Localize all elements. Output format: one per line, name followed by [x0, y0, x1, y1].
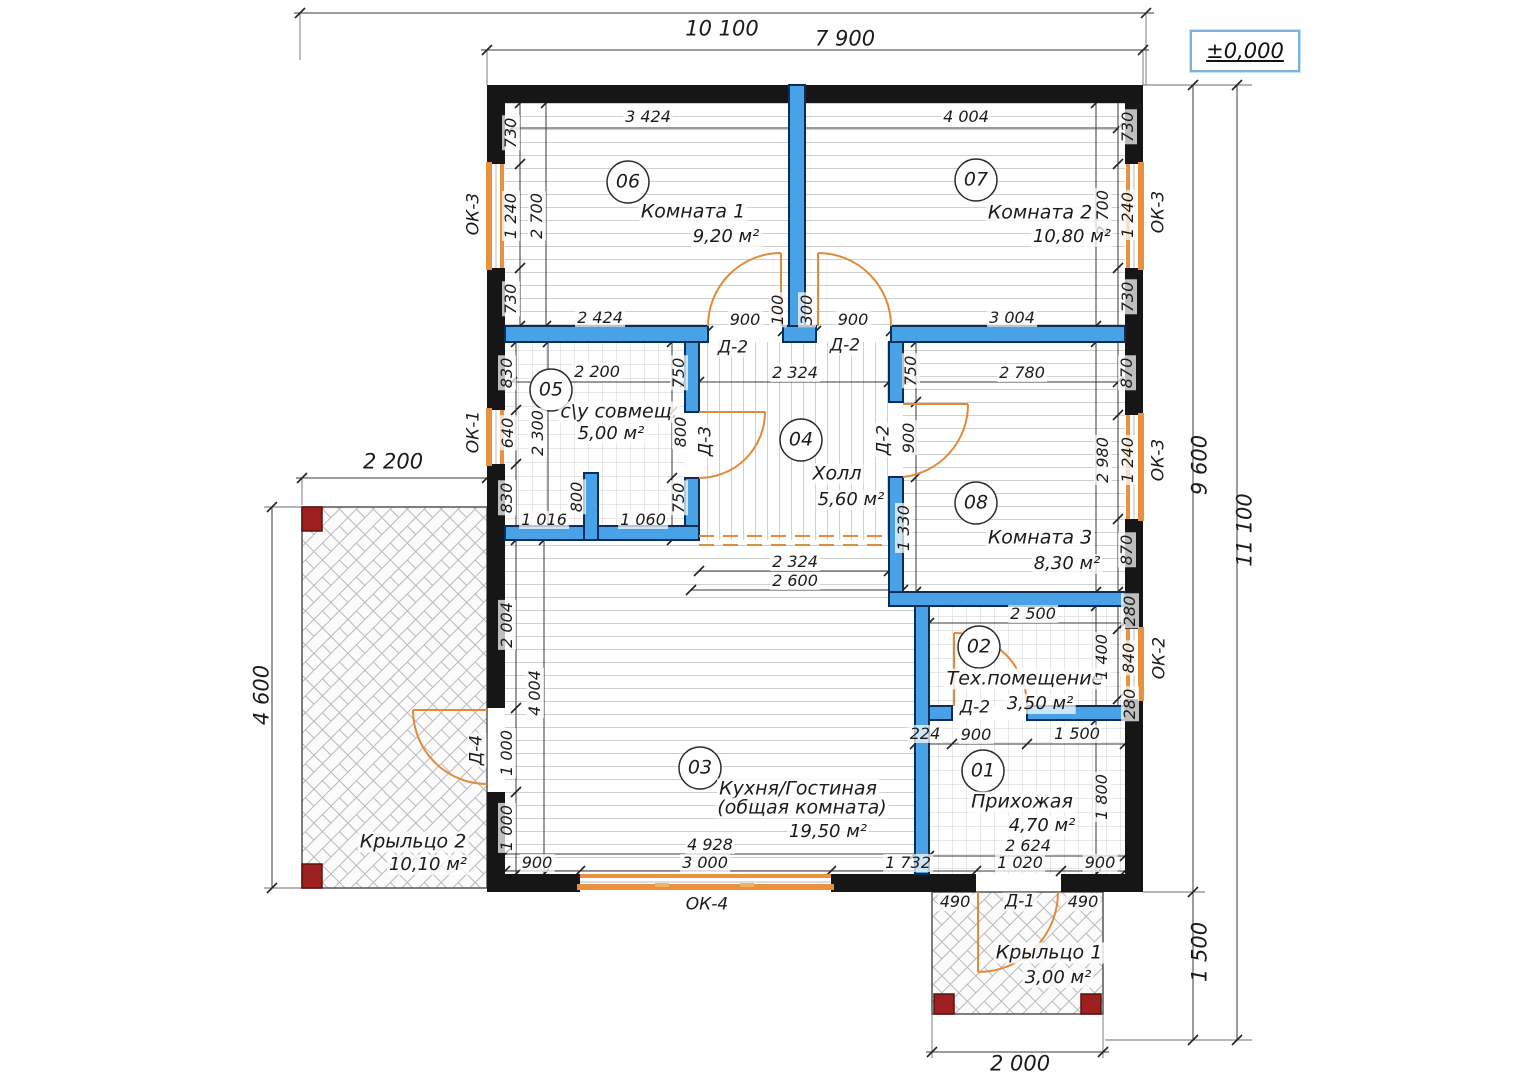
dim-1400: 1 400: [1093, 632, 1111, 682]
room-name-04: Холл: [811, 464, 864, 485]
door-label-d2: Д-2: [828, 337, 862, 356]
dim-800-door: 800: [672, 415, 690, 450]
room-number-06: 06: [616, 173, 640, 192]
dim-right-9600: 9 600: [1189, 433, 1212, 497]
room-name-03-line2: (общая комната): [715, 798, 888, 819]
room-number-02: 02: [967, 638, 991, 657]
dim-1500: 1 500: [1052, 725, 1102, 743]
dim-830: 830: [498, 481, 516, 516]
porch2-name: Крыльцо 2: [358, 832, 469, 853]
room-area-08: 8,30 м²: [1032, 554, 1103, 574]
door-label-d2: Д-2: [716, 339, 750, 358]
dim-490: 490: [1066, 893, 1101, 911]
dim-porch2-height: 4 600: [251, 663, 274, 727]
dim-730: 730: [1119, 280, 1137, 315]
dim-gap-100: 100: [769, 293, 787, 328]
dim-750: 750: [670, 481, 688, 516]
room-number-01: 01: [971, 762, 995, 781]
dim-800-stub: 800: [568, 480, 586, 515]
dim-840: 840: [1120, 641, 1138, 676]
dim-r07-bottom: 3 004: [987, 309, 1037, 327]
dim-r06-top: 3 424: [623, 108, 673, 126]
dim-1330: 1 330: [895, 503, 913, 553]
dim-hall-top: 2 324: [770, 364, 820, 382]
dim-640: 640: [499, 416, 517, 451]
room-number-05: 05: [539, 381, 563, 400]
dim-r08-bottom: 2 500: [1008, 605, 1058, 623]
window-label-ok4: ОК-4: [684, 896, 730, 915]
dim-2004: 2 004: [498, 600, 516, 650]
room-area-02: 3,50 м²: [1005, 694, 1076, 714]
room-area-07: 10,80 м²: [1031, 227, 1113, 247]
dim-830: 830: [498, 356, 516, 391]
dim-inner-width: 7 900: [813, 28, 877, 51]
elevation-marker: ±0,000: [1190, 30, 1300, 72]
room-area-06: 9,20 м²: [691, 227, 762, 247]
dim-1732: 1 732: [883, 854, 933, 872]
dim-870: 870: [1118, 533, 1136, 568]
dim-3000: 3 000: [680, 854, 730, 872]
dim-1016: 1 016: [519, 511, 569, 529]
room-number-08: 08: [964, 494, 988, 513]
dim-750: 750: [902, 354, 920, 389]
dim-2300: 2 300: [529, 408, 547, 458]
room-name-06: Комната 1: [639, 202, 747, 223]
room-name-08: Комната 3: [986, 528, 1094, 549]
room-area-01: 4,70 м²: [1007, 816, 1078, 836]
door-label-d2: Д-2: [875, 423, 894, 457]
dim-2600: 2 600: [770, 572, 820, 590]
room-area-03: 19,50 м²: [787, 822, 869, 842]
room-name-05: с\у совмещ.: [558, 402, 679, 423]
dim-b05-top: 2 200: [572, 363, 622, 381]
window-label-ok1: ОК-1: [465, 409, 484, 455]
dim-900: 900: [520, 854, 555, 872]
dim-4928: 4 928: [685, 836, 735, 854]
floor-plan-drawing: [0, 0, 1528, 1080]
room-number-03: 03: [688, 759, 712, 778]
dim-porch2-width: 2 200: [361, 451, 425, 474]
dim-870: 870: [1118, 356, 1136, 391]
room-number-04: 04: [789, 431, 813, 450]
dim-porch1-width: 2 000: [988, 1053, 1052, 1076]
dim-gap-300: 300: [798, 293, 816, 328]
dim-1240: 1 240: [1119, 435, 1137, 485]
dim-door-900: 900: [728, 311, 763, 329]
window-label-ok3-right-top: ОК-3: [1150, 189, 1169, 235]
room-name-07: Комната 2: [986, 203, 1094, 224]
dim-280: 280: [1121, 687, 1139, 722]
dim-r06-bottom: 2 424: [575, 309, 625, 327]
room-area-04: 5,60 м²: [816, 490, 887, 510]
dim-2700: 2 700: [528, 191, 546, 241]
dim-4004: 4 004: [526, 668, 544, 718]
dim-1000: 1 000: [498, 803, 516, 853]
dim-1240: 1 240: [1119, 190, 1137, 240]
porch1-area: 3,00 м²: [1023, 968, 1094, 988]
dim-280: 280: [1121, 594, 1139, 629]
floor-plan: ±0,000 10 100 7 900 9 600 11 100 1 500 4…: [0, 0, 1528, 1080]
dim-730: 730: [1119, 110, 1137, 145]
dim-overall-width: 10 100: [683, 18, 760, 41]
dim-1240: 1 240: [502, 191, 520, 241]
dim-2980: 2 980: [1094, 435, 1112, 485]
dim-490: 490: [938, 893, 973, 911]
door-label-d2: Д-2: [958, 699, 992, 718]
window-ok4-bottom: [577, 874, 834, 890]
window-label-ok3-left: ОК-3: [465, 191, 484, 237]
room-area-05: 5,00 м²: [576, 424, 647, 444]
dim-1060: 1 060: [618, 511, 668, 529]
dim-1800: 1 800: [1093, 772, 1111, 822]
porch1-name: Крыльцо 1: [994, 943, 1105, 964]
door-label-d1: Д-1: [1003, 893, 1037, 912]
room-name-02: Тех.помещение: [945, 669, 1106, 690]
dim-900: 900: [900, 421, 918, 456]
dim-r07-top: 4 004: [941, 108, 991, 126]
dim-hall-bottom: 2 324: [770, 553, 820, 571]
room-name-01: Прихожая: [969, 792, 1075, 813]
room-number-07: 07: [964, 171, 988, 190]
window-label-ok3-right-mid: ОК-3: [1150, 437, 1169, 483]
dim-750: 750: [670, 356, 688, 391]
door-label-d4: Д-4: [468, 733, 487, 767]
dim-224: 224: [908, 725, 943, 743]
porch2-area: 10,10 м²: [387, 855, 469, 875]
dim-730: 730: [502, 282, 520, 317]
dim-730: 730: [502, 116, 520, 151]
dim-1020: 1 020: [995, 854, 1045, 872]
dim-900: 900: [1083, 854, 1118, 872]
dim-r08-top: 2 780: [997, 364, 1047, 382]
dim-door-900: 900: [836, 311, 871, 329]
dim-900: 900: [959, 726, 994, 744]
door-label-d3: Д-3: [697, 424, 716, 458]
dim-right-11100: 11 100: [1234, 491, 1257, 568]
dim-1000: 1 000: [498, 728, 516, 778]
dim-right-1500: 1 500: [1189, 920, 1212, 984]
window-label-ok2: ОК-2: [1151, 635, 1170, 681]
